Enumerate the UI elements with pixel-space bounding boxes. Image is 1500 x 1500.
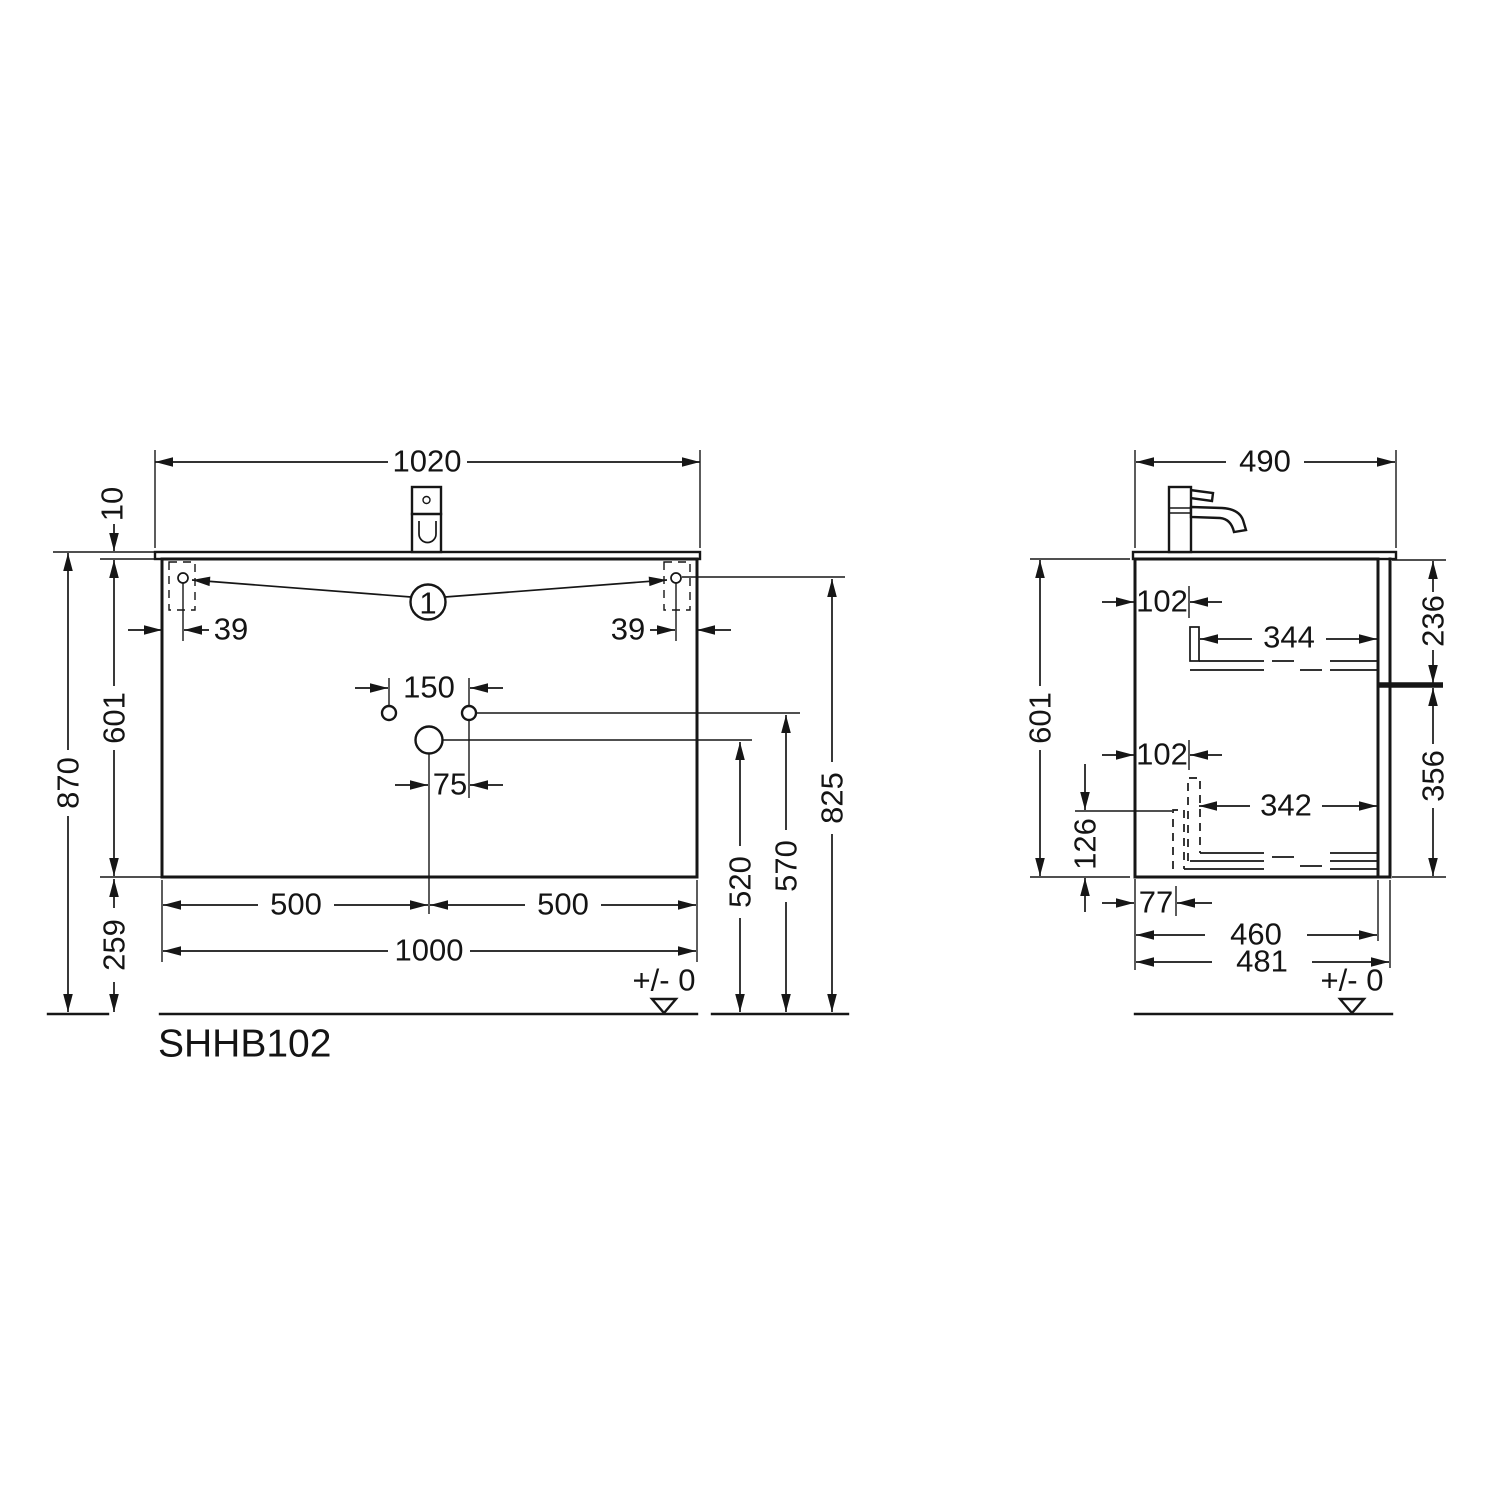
dim-cabinet-width: 1000 [163, 933, 696, 968]
dim-bracket-offset-right: 39 [611, 612, 731, 647]
tap-spout [1191, 507, 1246, 532]
front-tap [412, 487, 441, 552]
dim-text: 236 [1416, 595, 1451, 647]
dim-text: 1000 [395, 933, 464, 968]
bracket-outline-right [664, 562, 690, 610]
drain-hole [416, 727, 443, 754]
dim-hole-height: 570 [769, 715, 804, 1012]
dim-runner-length-top: 344 [1200, 620, 1377, 655]
balloon-number: 1 [419, 586, 436, 621]
datum-side: +/- 0 [1321, 963, 1384, 1014]
dim-text: 150 [403, 670, 455, 705]
dim-text: 490 [1239, 444, 1291, 479]
dim-text: 356 [1416, 750, 1451, 802]
tap-hole-right [462, 706, 476, 720]
side-view: 490 601 102 344 236 [1023, 444, 1451, 1015]
dim-text: 570 [769, 840, 804, 892]
dim-runner-setback-top: 102 [1102, 584, 1222, 619]
dim-bracket-offset-left: 39 [128, 612, 248, 647]
tap-lever [1190, 490, 1213, 501]
datum-front: +/- 0 [633, 963, 696, 1014]
side-tap [1169, 487, 1246, 552]
dim-text: 500 [270, 887, 322, 922]
dim-bottom-clearance: 259 [97, 879, 132, 1012]
dim-bracket-height: 825 [815, 579, 850, 1012]
dim-text: 520 [723, 856, 758, 908]
hidden-outline [1188, 778, 1200, 861]
dim-drain-height: 520 [723, 742, 758, 1012]
dim-text: 481 [1236, 944, 1288, 979]
dim-tap-hole-spacing: 150 [355, 670, 503, 706]
bracket-outline-left [169, 562, 195, 610]
dim-text: 500 [537, 887, 589, 922]
dim-top-drawer-front: 236 [1392, 560, 1451, 683]
datum-triangle-icon [652, 999, 676, 1013]
dim-runner-length-bottom: 342 [1199, 788, 1377, 823]
dim-text: 39 [214, 612, 248, 647]
dim-text: 39 [611, 612, 645, 647]
bracket-hole-right [671, 573, 681, 583]
tap-pivot [423, 497, 430, 504]
dim-text: 102 [1136, 737, 1188, 772]
technical-drawing-svg: 1 1020 10 39 39 [0, 0, 1500, 1500]
dim-text: 77 [1139, 885, 1173, 920]
hidden-outline [1173, 810, 1184, 869]
dim-text: 259 [97, 919, 132, 971]
dim-text: 1020 [393, 444, 462, 479]
datum-triangle-icon [1340, 999, 1364, 1013]
dim-text: 825 [815, 772, 850, 824]
dim-text: 126 [1068, 818, 1103, 870]
dim-cabinet-height-front: 601 [97, 559, 163, 877]
dim-text: 601 [97, 692, 132, 744]
runner-bracket [1190, 627, 1199, 661]
model-code: SHHB102 [158, 1023, 331, 1066]
dim-text: 601 [1023, 692, 1058, 744]
dim-text: 344 [1263, 620, 1315, 655]
datum-text: +/- 0 [633, 963, 696, 998]
dim-bottom-drawer-front: 356 [1392, 688, 1451, 877]
dim-text: 870 [51, 757, 86, 809]
tap-body [1169, 487, 1191, 552]
dim-drawer-box-setback: 77 [1102, 885, 1212, 920]
balloon-callout: 1 [192, 580, 667, 621]
tap-hole-left [382, 706, 396, 720]
dim-text: 342 [1260, 788, 1312, 823]
drawing-canvas: 1 1020 10 39 39 [0, 0, 1500, 1500]
dim-text: 10 [95, 487, 130, 521]
dim-runner-setback-bottom: 102 [1102, 737, 1222, 772]
front-view: 1 1020 10 39 39 [48, 444, 850, 1066]
datum-text: +/- 0 [1321, 963, 1384, 998]
dim-text: 102 [1136, 584, 1188, 619]
balloon-leader-left [192, 580, 411, 597]
dim-text: 75 [433, 767, 467, 802]
dim-basin-thickness: 10 [53, 487, 155, 552]
dim-overall-height: 870 [51, 553, 86, 1012]
balloon-leader-right [445, 580, 667, 597]
bracket-hole-left [178, 573, 188, 583]
dim-drain-offset: 75 [395, 721, 503, 914]
